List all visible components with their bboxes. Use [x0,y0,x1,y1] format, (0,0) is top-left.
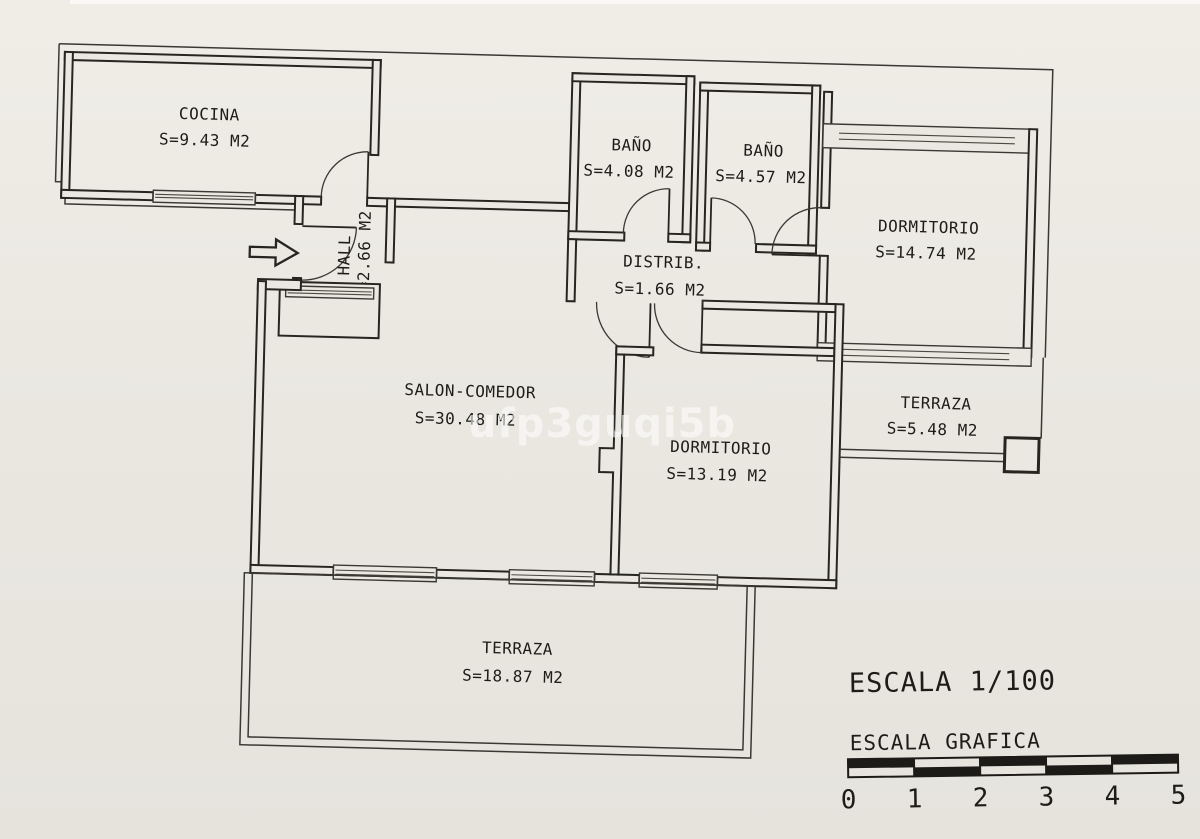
watermark-text: ufp3guqi5b [468,401,736,447]
paper-edge-highlight [70,0,1200,4]
floor-plan-canvas: COCINA S=9.43 M2 HALL S=2.66 M2 [0,0,1200,839]
scale-tick-2: 2 [972,783,988,813]
room-area: S=1.66 M2 [614,278,706,299]
window [509,570,594,586]
scale-tick-1: 1 [907,784,923,814]
room-area: S=13.19 M2 [666,464,768,486]
room-area: S=14.74 M2 [875,242,977,264]
window [153,190,255,205]
window [333,565,436,582]
column-pillar [1004,438,1039,473]
room-label: BAÑO [743,141,784,161]
scale-tick-4: 4 [1104,781,1120,811]
room-label: BAÑO [611,135,652,155]
window [639,573,717,589]
scale-tick-0: 0 [841,785,857,815]
room-area: S=18.87 M2 [462,665,564,687]
scale-tick-5: 5 [1170,781,1186,811]
room-label: HALL [334,235,354,276]
room-label: DISTRIB. [623,252,705,273]
room-area: S=9.43 M2 [159,129,251,150]
scale-graphic-label: ESCALA GRAFICA [850,729,1041,756]
scale-title: ESCALA 1/100 [849,665,1056,699]
room-area: S=4.08 M2 [583,160,675,181]
scale-tick-3: 3 [1038,782,1054,812]
room-area: S=4.57 M2 [715,166,807,187]
room-area: S=5.48 M2 [887,419,979,440]
room-label: TERRAZA [482,638,553,659]
room-label: SALON-COMEDOR [404,380,536,402]
window [823,124,1038,154]
room-label: COCINA [179,104,240,125]
room-label: TERRAZA [900,393,971,414]
room-label: DORMITORIO [878,216,980,238]
floor-plan-photo: COCINA S=9.43 M2 HALL S=2.66 M2 [0,0,1200,839]
